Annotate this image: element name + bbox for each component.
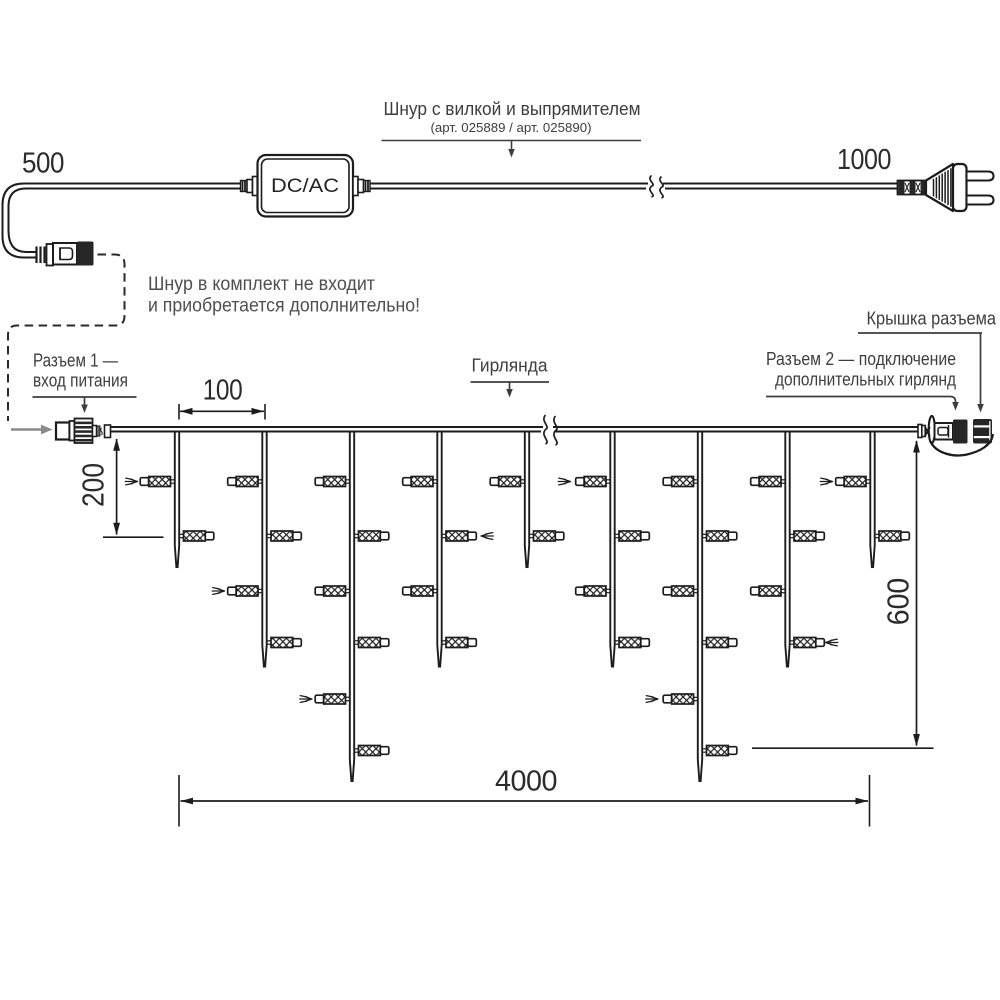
svg-text:и приобретается дополнительно!: и приобретается дополнительно!	[148, 295, 420, 317]
svg-text:Шнур в комплект не входит: Шнур в комплект не входит	[148, 273, 375, 295]
svg-text:100: 100	[203, 375, 243, 407]
svg-text:Гирлянда: Гирлянда	[472, 355, 549, 376]
svg-text:DC/AC: DC/AC	[271, 176, 339, 197]
svg-text:дополнительных гирлянд: дополнительных гирлянд	[775, 369, 956, 390]
svg-text:вход питания: вход питания	[33, 370, 128, 391]
svg-text:600: 600	[882, 578, 916, 626]
svg-text:Шнур с вилкой и выпрямителем: Шнур с вилкой и выпрямителем	[384, 98, 641, 119]
svg-text:Крышка разъема: Крышка разъема	[867, 308, 997, 329]
svg-text:4000: 4000	[495, 766, 557, 798]
svg-text:500: 500	[22, 148, 64, 180]
svg-text:(арт. 025889 / арт. 025890): (арт. 025889 / арт. 025890)	[431, 120, 592, 135]
svg-text:Разъем 2 — подключение: Разъем 2 — подключение	[766, 348, 956, 369]
svg-text:200: 200	[77, 463, 111, 507]
svg-text:1000: 1000	[837, 144, 891, 176]
svg-text:Разъем 1 —: Разъем 1 —	[33, 350, 118, 371]
